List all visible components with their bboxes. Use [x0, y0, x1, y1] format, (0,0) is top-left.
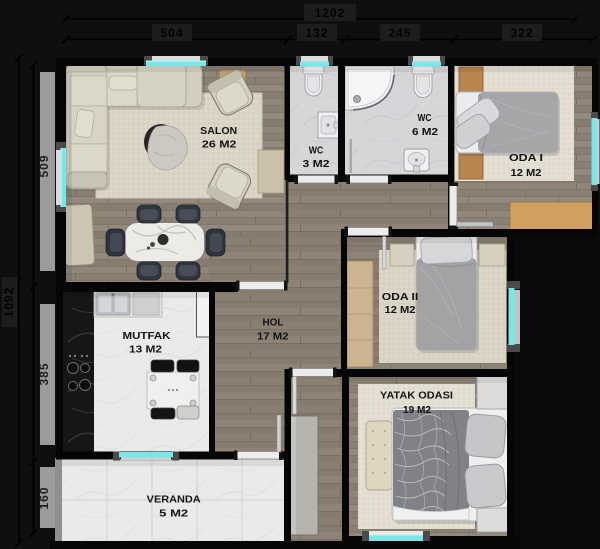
svg-text:YATAK ODASI: YATAK ODASI	[380, 390, 453, 402]
svg-text:160: 160	[37, 486, 51, 509]
svg-text:322: 322	[510, 26, 533, 40]
svg-text:ODA I: ODA I	[509, 152, 543, 164]
svg-text:WC: WC	[309, 145, 324, 157]
svg-text:12 M2: 12 M2	[511, 167, 542, 179]
svg-text:WC: WC	[418, 112, 432, 124]
svg-text:245: 245	[388, 26, 411, 40]
svg-text:3 M2: 3 M2	[303, 158, 330, 170]
svg-text:509: 509	[37, 154, 51, 177]
svg-text:504: 504	[160, 26, 183, 40]
svg-text:385: 385	[37, 362, 51, 385]
svg-text:26 M2: 26 M2	[202, 139, 237, 151]
svg-text:VERANDA: VERANDA	[147, 494, 201, 506]
svg-text:MUTFAK: MUTFAK	[123, 330, 171, 342]
svg-text:6 M2: 6 M2	[412, 126, 438, 138]
svg-text:19 M2: 19 M2	[403, 404, 431, 416]
svg-text:1202: 1202	[315, 6, 346, 20]
svg-text:5 M2: 5 M2	[159, 508, 188, 520]
svg-text:12 M2: 12 M2	[385, 304, 416, 316]
svg-text:HOL: HOL	[263, 317, 285, 329]
svg-text:ODA II: ODA II	[382, 291, 419, 303]
svg-text:1092: 1092	[2, 287, 16, 318]
svg-text:13 M2: 13 M2	[129, 344, 162, 356]
svg-text:17 M2: 17 M2	[257, 331, 289, 343]
svg-text:132: 132	[305, 26, 328, 40]
svg-text:SALON: SALON	[200, 125, 237, 137]
